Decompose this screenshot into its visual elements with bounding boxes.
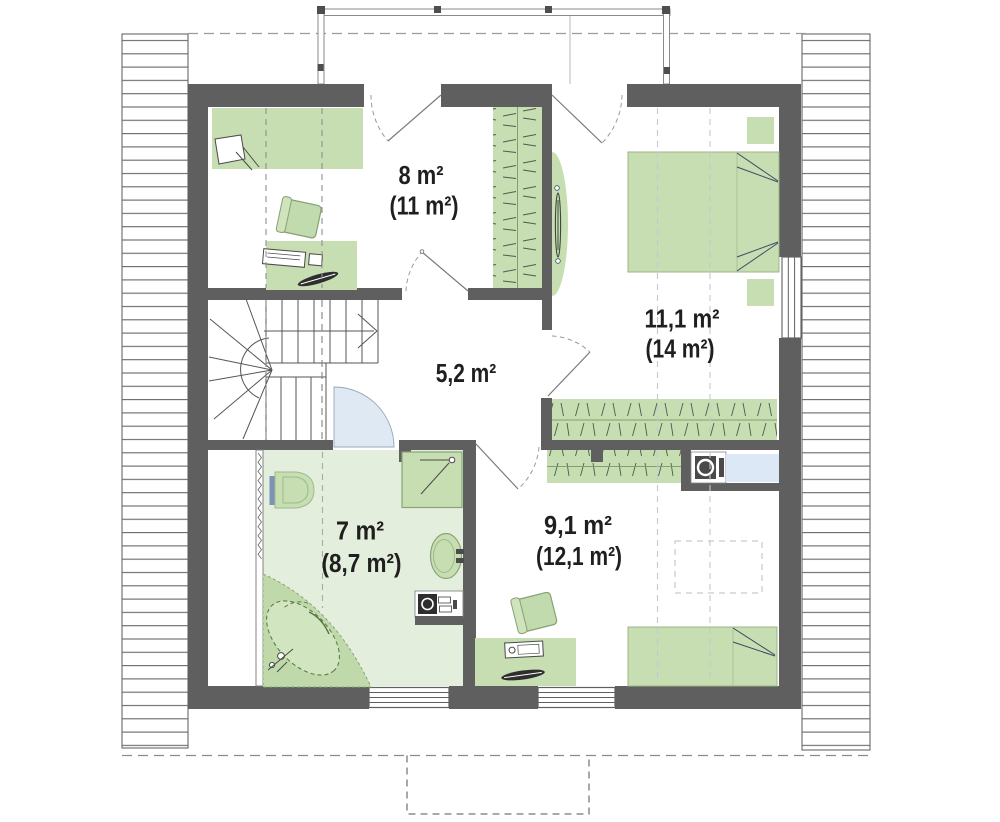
- svg-text:(8,7 m²): (8,7 m²): [322, 550, 402, 578]
- svg-text:(11 m²): (11 m²): [390, 193, 459, 221]
- svg-text:5,2 m²: 5,2 m²: [436, 360, 497, 388]
- svg-text:11,1 m²: 11,1 m²: [645, 306, 720, 334]
- svg-text:(14 m²): (14 m²): [646, 336, 715, 364]
- svg-text:7 m²: 7 m²: [336, 518, 384, 546]
- svg-text:9,1 m²: 9,1 m²: [544, 512, 612, 540]
- svg-text:(12,1 m²): (12,1 m²): [536, 543, 622, 571]
- svg-text:8 m²: 8 m²: [399, 162, 444, 190]
